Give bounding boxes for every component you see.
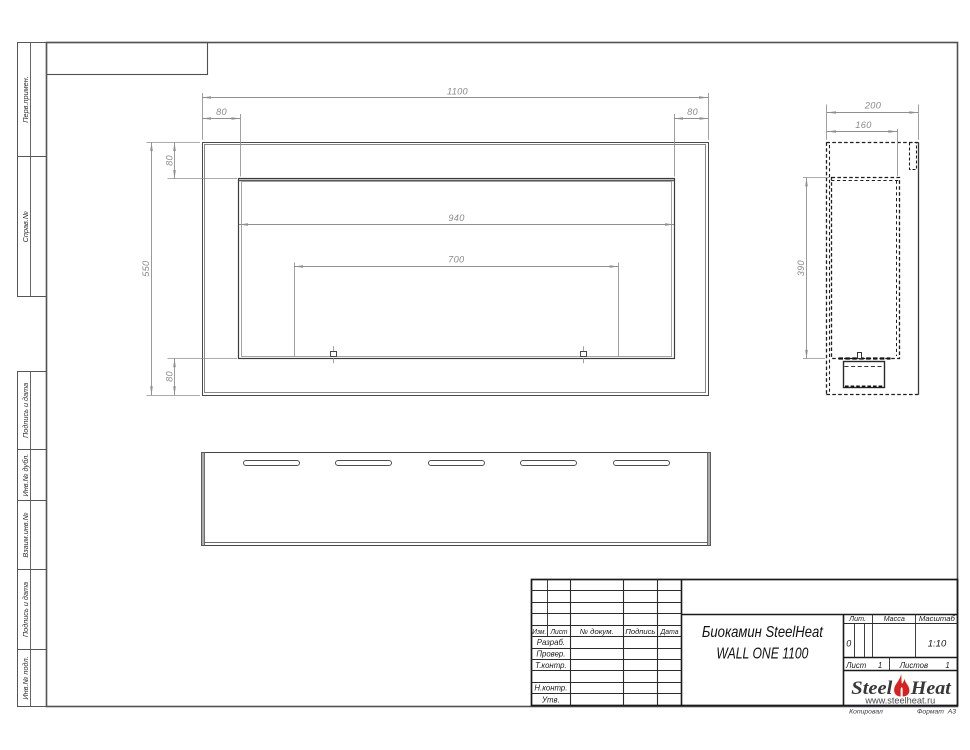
svg-text:700: 700 — [448, 254, 465, 264]
svg-text:Лист: Лист — [550, 627, 568, 636]
svg-text:Справ.№: Справ.№ — [21, 211, 30, 242]
svg-text:№ докум.: № докум. — [580, 627, 614, 636]
svg-text:Подпись: Подпись — [625, 627, 655, 636]
svg-text:80: 80 — [165, 155, 175, 166]
svg-text:80: 80 — [687, 107, 698, 117]
svg-text:80: 80 — [216, 107, 227, 117]
svg-text:WALL ONE 1100: WALL ONE 1100 — [716, 645, 808, 662]
svg-text:Изм.: Изм. — [532, 627, 546, 636]
svg-text:1:10: 1:10 — [928, 638, 947, 649]
svg-text:Подпись и дата: Подпись и дата — [21, 582, 30, 637]
svg-text:Н.контр.: Н.контр. — [534, 684, 567, 693]
svg-text:160: 160 — [855, 120, 872, 130]
svg-text:1: 1 — [878, 661, 882, 670]
svg-text:80: 80 — [165, 371, 175, 382]
svg-text:Провер.: Провер. — [536, 650, 565, 659]
svg-text:Инв.№ подл.: Инв.№ подл. — [21, 656, 30, 699]
svg-text:940: 940 — [448, 213, 465, 223]
svg-text:Разраб.: Разраб. — [537, 638, 565, 647]
svg-text:390: 390 — [796, 259, 806, 276]
svg-text:Копировал: Копировал — [849, 708, 883, 715]
svg-text:1: 1 — [945, 661, 949, 670]
svg-text:Перв.примен.: Перв.примен. — [21, 76, 30, 122]
svg-text:Масштаб: Масштаб — [919, 614, 956, 623]
svg-text:Взаим.инв.№: Взаим.инв.№ — [21, 512, 30, 557]
svg-text:Т.контр.: Т.контр. — [535, 661, 566, 670]
svg-text:Утв.: Утв. — [541, 695, 560, 704]
svg-text:Масса: Масса — [884, 614, 905, 623]
svg-text:0: 0 — [846, 639, 851, 649]
svg-text:550: 550 — [141, 260, 151, 277]
svg-text:Инв.№ дубл.: Инв.№ дубл. — [21, 454, 30, 497]
svg-text:Формат А3: Формат А3 — [917, 708, 956, 715]
svg-text:200: 200 — [864, 101, 882, 111]
svg-text:1100: 1100 — [447, 86, 469, 96]
svg-text:Биокамин SteelHeat: Биокамин SteelHeat — [702, 624, 823, 641]
svg-text:www.steelheat.ru: www.steelheat.ru — [864, 696, 935, 706]
svg-text:Подпись и дата: Подпись и дата — [21, 383, 30, 438]
svg-text:Лит.: Лит. — [848, 614, 866, 623]
svg-text:Лист: Лист — [845, 661, 867, 670]
svg-text:Дата: Дата — [660, 627, 679, 636]
svg-text:Листов: Листов — [899, 661, 928, 670]
